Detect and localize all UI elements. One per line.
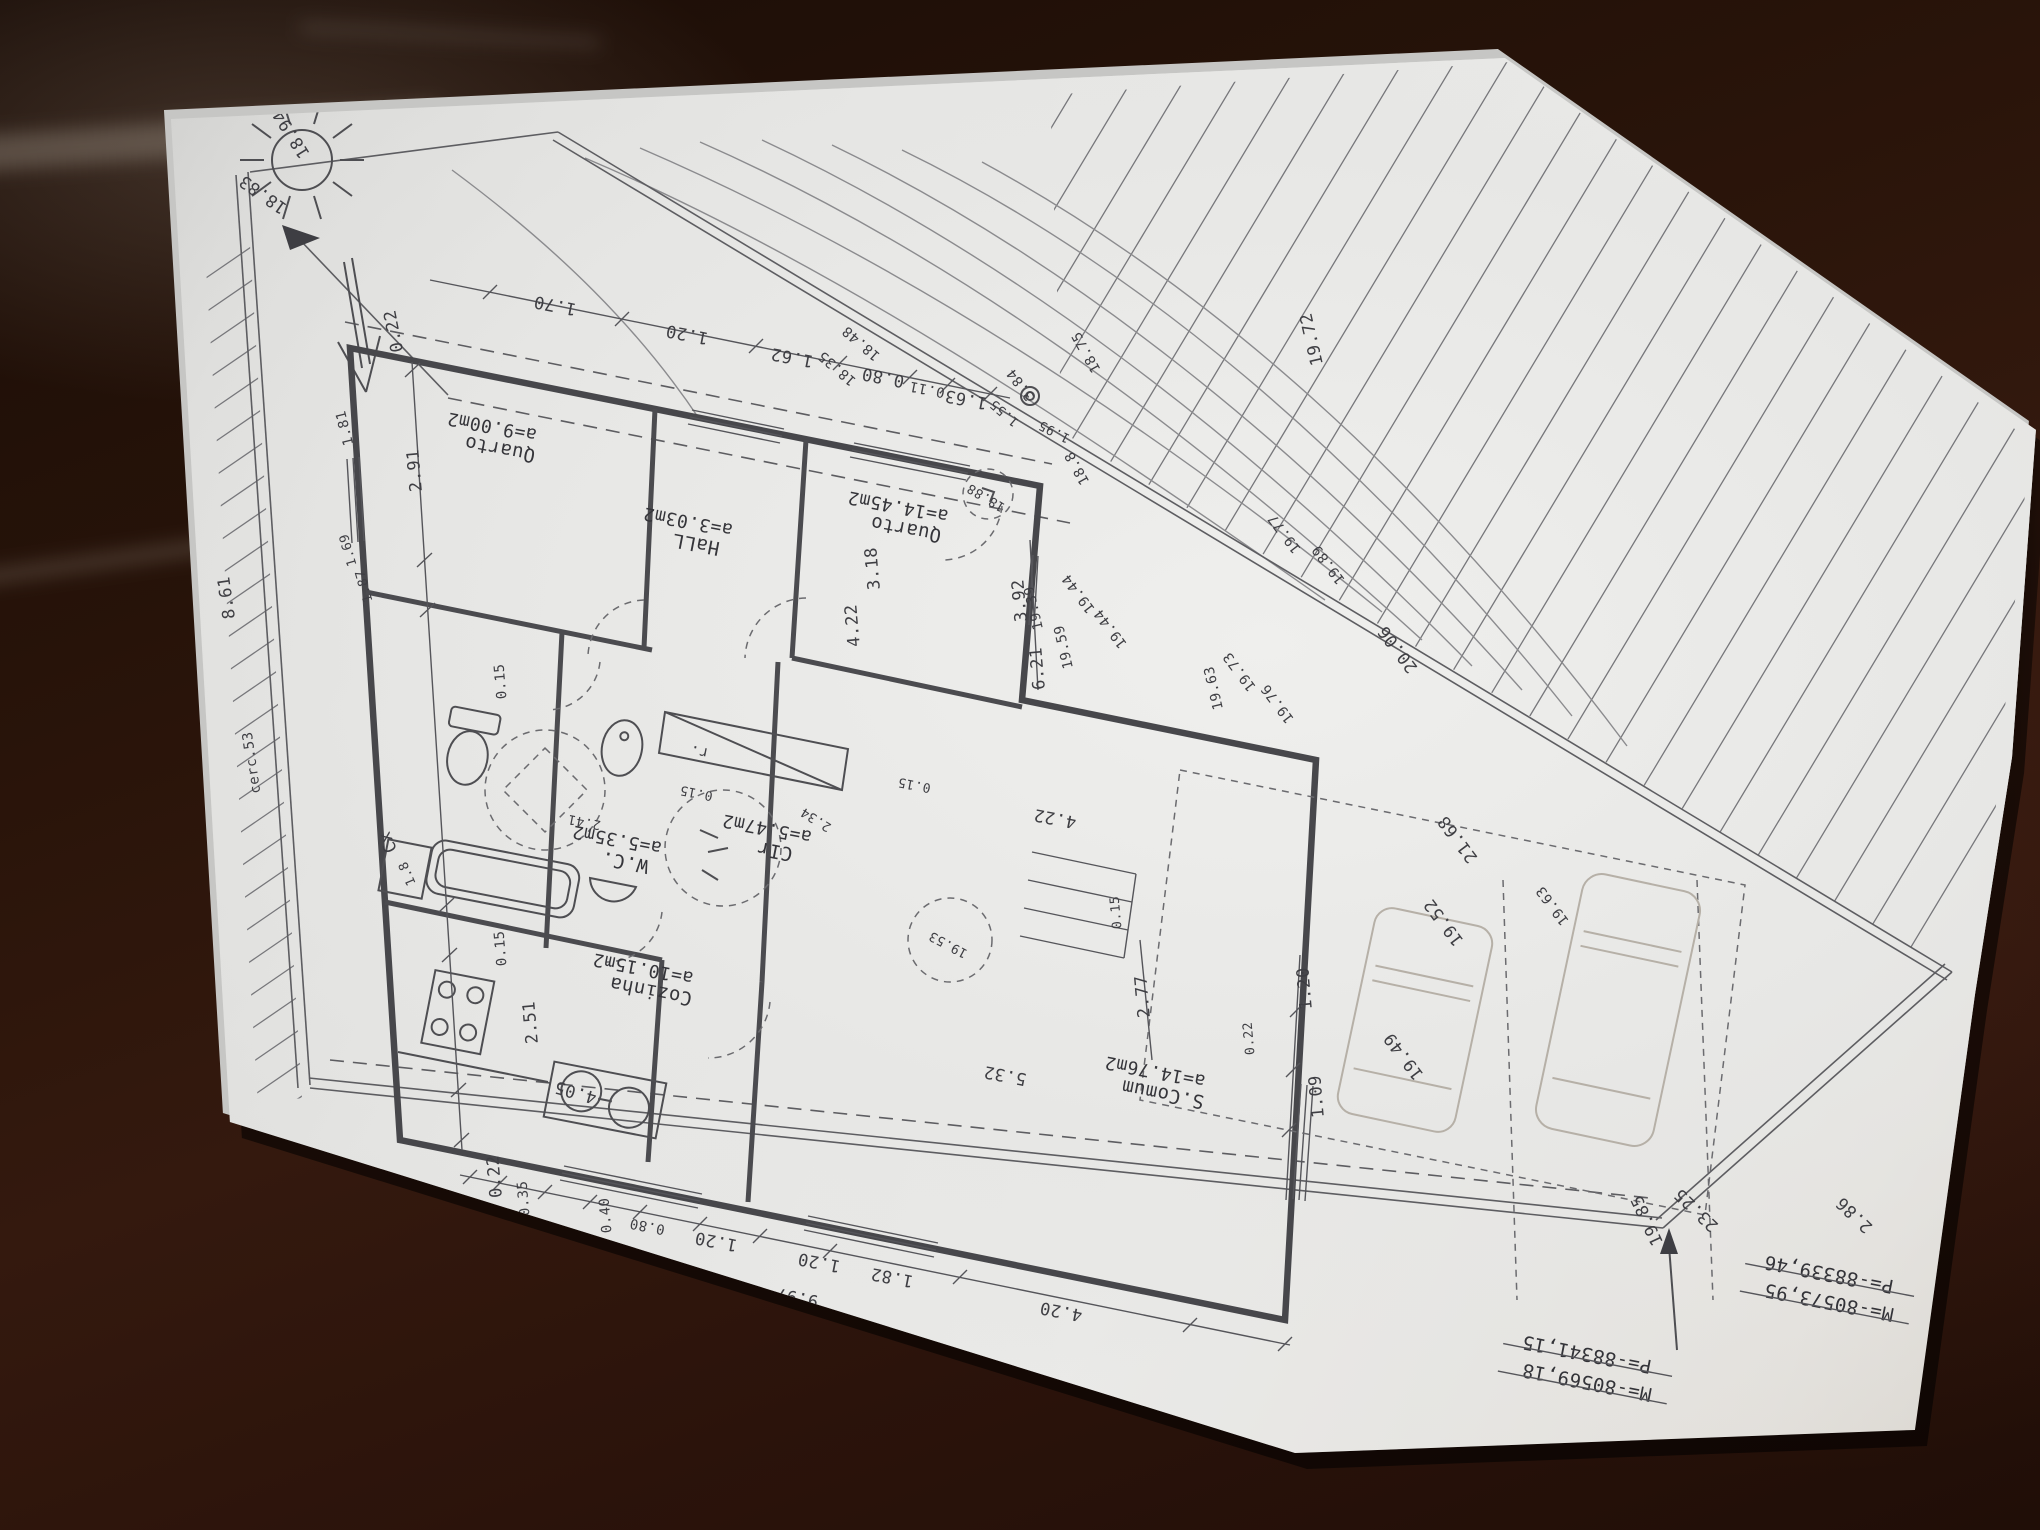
annotation-label: 19.76 xyxy=(1258,681,1298,726)
annotation-label: 18.88 xyxy=(964,480,1007,514)
annotation-label: 21.68 xyxy=(1434,812,1482,867)
annotation-label: 0.11 xyxy=(908,378,946,401)
annotation-label: 18.75 xyxy=(1069,329,1105,376)
annotation-label: 1.87 xyxy=(353,568,377,604)
annotation-label: r. xyxy=(688,741,710,762)
annotation-label: 19.73 xyxy=(1220,649,1260,694)
annotation-label: 1.69 xyxy=(337,532,361,568)
annotation-label: 19.72 xyxy=(1296,311,1328,368)
car-icon xyxy=(1334,905,1495,1135)
annotation-label: 19.85 xyxy=(1627,1192,1668,1249)
annotation-label: 1.20 xyxy=(664,320,710,348)
closet xyxy=(659,712,848,790)
annotation-label: 18.35 xyxy=(815,347,859,388)
annotation-label: 0.15 xyxy=(491,930,510,967)
annotation-label: 0.80 xyxy=(628,1215,666,1238)
annotation-label: 0.15 xyxy=(1108,895,1126,929)
annotation-label: 5.32 xyxy=(982,1061,1028,1089)
annotation-label: 19.53 xyxy=(926,928,970,961)
annotation-label: 0.15 xyxy=(679,782,715,803)
annotation-label: 4.05 xyxy=(552,1076,599,1107)
annotation-label: 1.20 xyxy=(1293,966,1317,1011)
annotation-label: 1.70 xyxy=(532,291,578,319)
toilet-icon xyxy=(438,706,501,789)
bathtub-icon xyxy=(424,838,582,920)
annotation-label: 0.22 xyxy=(380,308,408,354)
annotation-label: 1.62 xyxy=(769,343,815,371)
floor-plan-drawing: 18.9418.831.810.221.701.201.620.800.111.… xyxy=(0,0,2040,1530)
annotation-label: 0.80 xyxy=(860,363,906,391)
annotation-label: 0.40 xyxy=(596,1197,615,1234)
annotation-label: 3.18 xyxy=(861,546,885,591)
kitchen-sink-icon xyxy=(544,1062,667,1139)
annotation-label: 8.61 xyxy=(214,575,240,620)
annotation-label: 19.59 xyxy=(1051,623,1077,670)
windows xyxy=(347,410,1313,1257)
annotation-label: 4.22 xyxy=(1032,804,1078,832)
bidet-icon xyxy=(597,717,647,780)
annotation-label: 4.22 xyxy=(841,603,865,648)
annotation-label: 1.8 xyxy=(396,859,420,888)
annotation-label: 1.09 xyxy=(1305,1074,1329,1119)
dimension-chains xyxy=(405,280,1304,1351)
annotation-label: 2.51 xyxy=(519,1000,543,1045)
stove-icon xyxy=(421,970,494,1054)
north-arrow-icon xyxy=(338,258,380,392)
annotation-label: 0.22 xyxy=(483,1154,507,1199)
annotation-label: 19.89 xyxy=(1309,542,1349,587)
photo-scene: 18.9418.831.810.221.701.201.620.800.111.… xyxy=(0,0,2040,1530)
bathroom-fixtures xyxy=(424,706,647,920)
survey-marker xyxy=(282,225,320,250)
annotation-label: 6.21 xyxy=(1026,646,1050,691)
annotation-label: cerc.53 xyxy=(240,730,265,794)
annotation-label: 1.63 xyxy=(943,385,989,413)
annotation-label: 2.77 xyxy=(1131,974,1155,1019)
annotation-label: 0.15 xyxy=(491,663,510,700)
annotation-label: 0.22 xyxy=(1241,1021,1259,1055)
washbasin-icon xyxy=(590,878,636,901)
annotation-label: 18.8 xyxy=(1062,448,1093,487)
annotation-label: 19.44 xyxy=(1059,571,1099,616)
annotation-label: 19.63 xyxy=(1533,883,1573,928)
annotation-label: 0.15 xyxy=(897,774,933,795)
annotation-label: 19.44 xyxy=(1091,606,1131,651)
annotation-label: 1.95 xyxy=(1036,417,1072,445)
annotation-label: 19.63 xyxy=(1201,664,1227,711)
wood-scratch-2 xyxy=(300,22,600,48)
annotation-label: 2.91 xyxy=(403,448,427,493)
wood-scratch xyxy=(0,539,210,585)
annotation-label: 18.83 xyxy=(235,171,290,218)
coordinate-arrow xyxy=(1660,1228,1678,1350)
road-far-hatching xyxy=(440,40,2040,972)
annotation-label: 0.35 xyxy=(514,1180,533,1217)
annotation-label: 2.86 xyxy=(1832,1192,1877,1236)
